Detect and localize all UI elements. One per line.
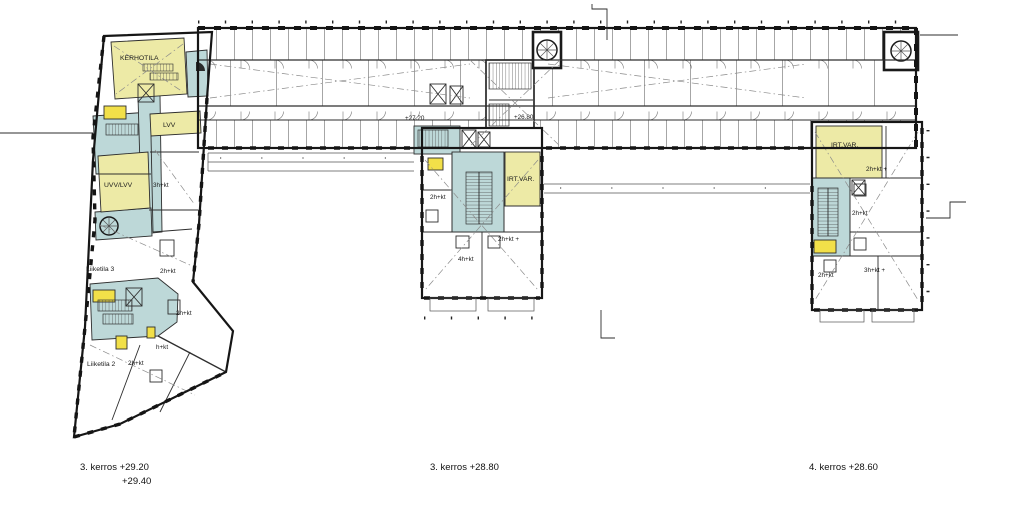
room-label-liiketila2: Liiketila 2 [87, 361, 116, 368]
room-label-liiketila3: Liiketila 3 [86, 266, 115, 273]
room-label-irtvar-right: IRT.VAR. [831, 142, 858, 149]
architectural-floor-plan: +27.20 +26.80 KERHOTILA LVV UVV/LVV 3h+k… [0, 0, 1024, 513]
apt-label-3hkt: 3h+kt [153, 182, 169, 189]
room-label-kerhotila: KERHOTILA [120, 55, 159, 62]
apt-label-mid-2hkt-plus: 2h+kt + [498, 236, 519, 243]
apt-label-right-3hkt-plus: 3h+kt + [864, 267, 885, 274]
apt-label-mid-4hkt: 4h+kt [458, 256, 474, 263]
apt-label-2hkt-c: 2h+kt [128, 360, 144, 367]
room-label-lvv: LVV [163, 122, 176, 129]
level-label-left: +27.20 [405, 115, 425, 122]
floor-captions: 3. kerros +29.20 +29.40 3. kerros +28.80… [80, 462, 878, 487]
room-label-uvv-lvv: UVV/LVV [104, 182, 133, 189]
caption-middle: 3. kerros +28.80 [430, 462, 499, 473]
apt-label-mid-2hkt: 2h+kt [430, 194, 446, 201]
caption-left-line1: 3. kerros +29.20 [80, 462, 149, 473]
apt-label-right-2hkt-b: 2h+kt [818, 272, 834, 279]
floor-plan-page: +27.20 +26.80 KERHOTILA LVV UVV/LVV 3h+k… [0, 0, 1024, 513]
apt-label-2hkt-a: 2h+kt [160, 268, 176, 275]
room-label-irtvar-middle: IRT.VAR. [507, 176, 534, 183]
apt-label-hkt: h+kt [156, 344, 168, 351]
level-label-right: +26.80 [514, 114, 534, 121]
apt-label-2hkt-b: 2h+kt [176, 310, 192, 317]
apt-label-right-2hkt-a: 2h+kt [852, 210, 868, 217]
caption-right: 4. kerros +28.60 [809, 462, 878, 473]
apt-label-right-2hkt-plus: 2h+kt + [866, 166, 887, 173]
caption-left-line2: +29.40 [122, 476, 151, 487]
